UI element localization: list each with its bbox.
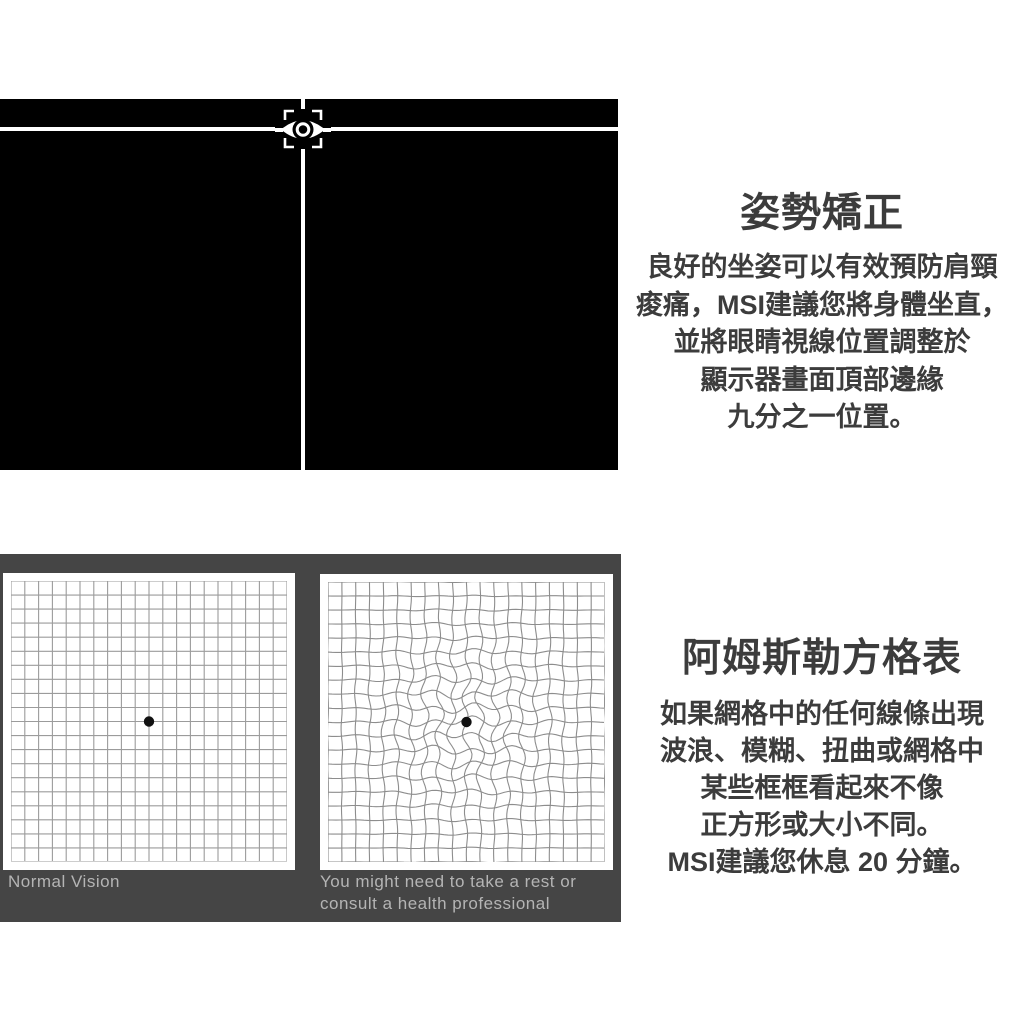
posture-body-line: 九分之一位置。 (620, 399, 1024, 437)
amsler-body-line: MSI建議您休息 20 分鐘。 (620, 844, 1024, 881)
label-line: Normal Vision (8, 871, 120, 893)
page: 姿勢矯正 良好的坐姿可以有效預防肩頸 痠痛，MSI建議您將身體坐直， 並將眼睛視… (0, 0, 1024, 1024)
posture-body-line: 良好的坐姿可以有效預防肩頸 (620, 249, 1024, 287)
posture-demo-screen (0, 99, 618, 470)
posture-body-line: 顯示器畫面頂部邊緣 (620, 362, 1024, 400)
distorted-grid-svg (328, 582, 605, 862)
amsler-body-line: 如果網格中的任何線條出現 (620, 696, 1024, 733)
amsler-text-block: 阿姆斯勒方格表 如果網格中的任何線條出現 波浪、模糊、扭曲或網格中 某些框框看起… (620, 636, 1024, 881)
rest-advice-label: You might need to take a rest or consult… (320, 871, 576, 915)
eye-viewfinder-icon (275, 101, 331, 157)
amsler-grid-distorted (320, 574, 613, 870)
amsler-panel-container: Normal Vision You might need to take a r… (0, 554, 621, 922)
posture-body: 良好的坐姿可以有效預防肩頸 痠痛，MSI建議您將身體坐直， 並將眼睛視線位置調整… (620, 249, 1024, 437)
posture-body-line: 並將眼睛視線位置調整於 (620, 324, 1024, 362)
posture-title: 姿勢矯正 (620, 190, 1024, 236)
normal-grid-svg (11, 581, 287, 862)
amsler-grid-normal (3, 573, 295, 870)
amsler-title: 阿姆斯勒方格表 (620, 636, 1024, 682)
amsler-body-line: 正方形或大小不同。 (620, 807, 1024, 844)
eye-icon-svg (275, 101, 331, 157)
label-line: consult a health professional (320, 893, 576, 915)
posture-text-block: 姿勢矯正 良好的坐姿可以有效預防肩頸 痠痛，MSI建議您將身體坐直， 並將眼睛視… (620, 190, 1024, 437)
normal-vision-label: Normal Vision (8, 871, 120, 893)
amsler-body-line: 某些框框看起來不像 (620, 770, 1024, 807)
posture-body-line: 痠痛，MSI建議您將身體坐直， (620, 287, 1024, 325)
amsler-body: 如果網格中的任何線條出現 波浪、模糊、扭曲或網格中 某些框框看起來不像 正方形或… (620, 696, 1024, 881)
label-line: You might need to take a rest or (320, 871, 576, 893)
amsler-body-line: 波浪、模糊、扭曲或網格中 (620, 733, 1024, 770)
